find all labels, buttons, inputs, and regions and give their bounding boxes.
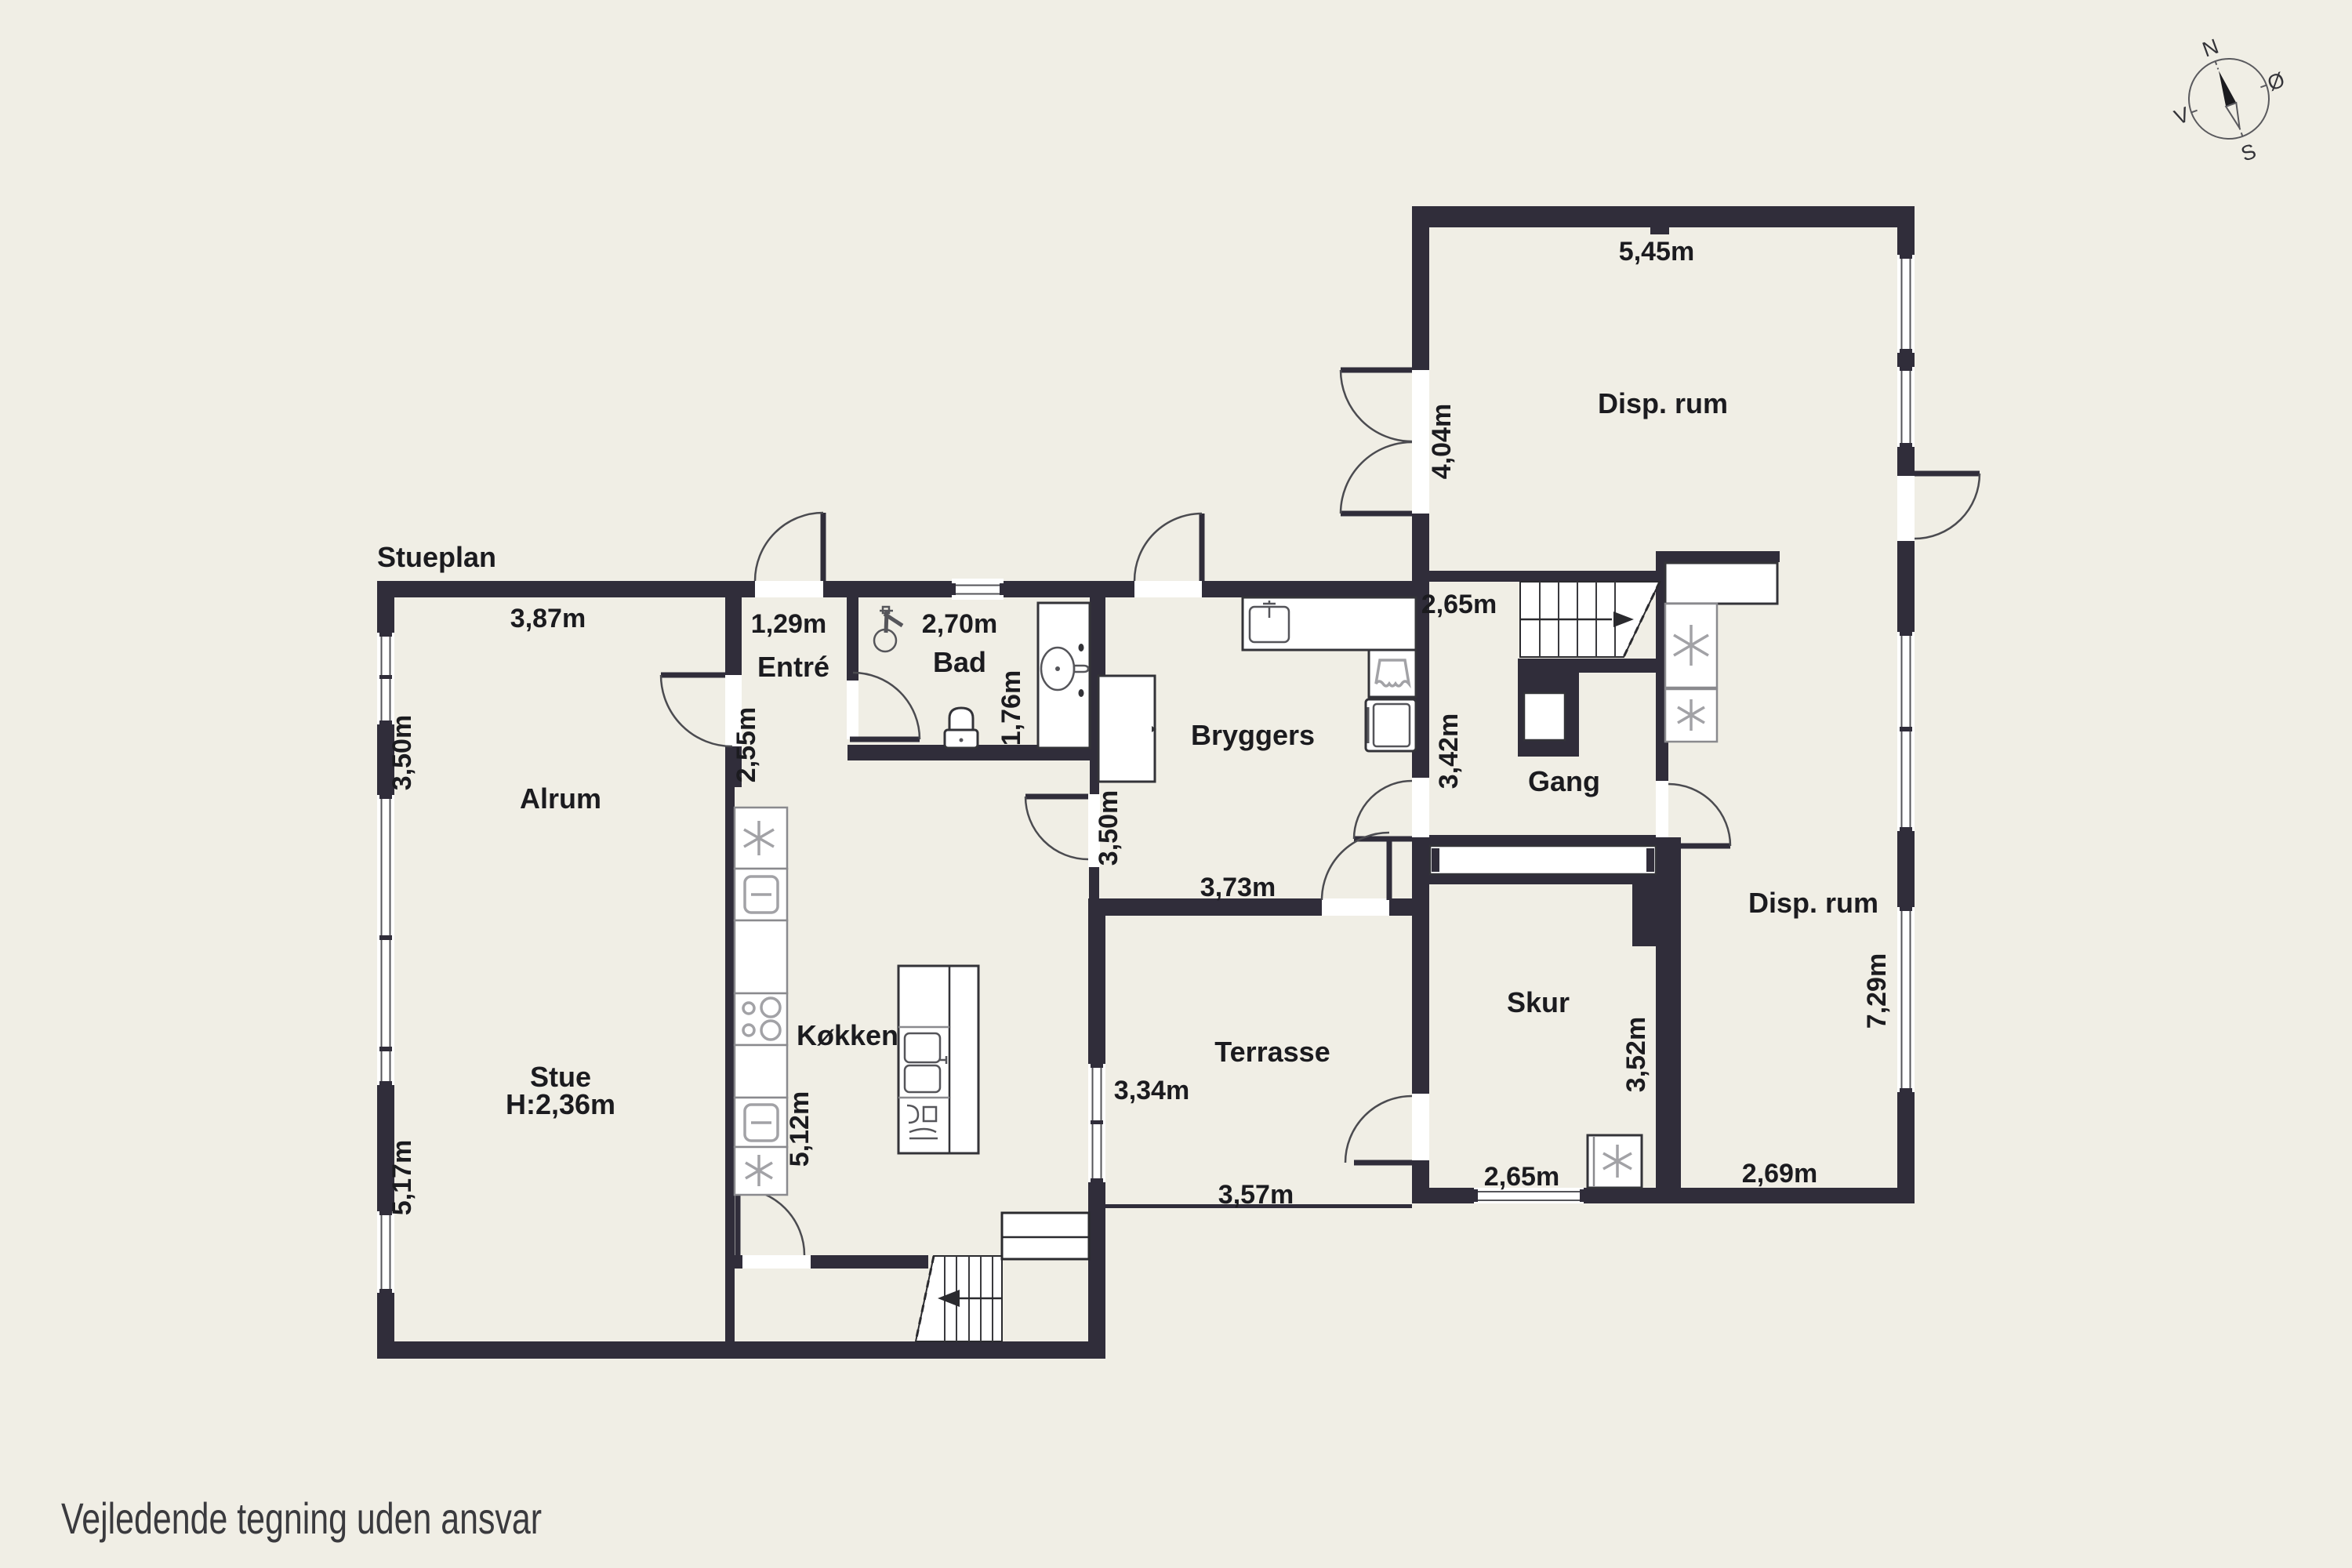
svg-text:2,55m: 2,55m [731, 707, 761, 782]
svg-text:2,65m: 2,65m [1421, 590, 1497, 619]
svg-text:Entré: Entré [757, 651, 829, 683]
svg-text:Terrasse: Terrasse [1214, 1036, 1330, 1068]
svg-text:3,34m: 3,34m [1114, 1076, 1189, 1105]
svg-text:2,65m: 2,65m [1484, 1162, 1559, 1192]
svg-text:1,76m: 1,76m [996, 670, 1026, 746]
svg-text:4,04m: 4,04m [1427, 404, 1457, 479]
svg-text:3,42m: 3,42m [1434, 713, 1464, 789]
svg-text:1,29m: 1,29m [751, 609, 826, 639]
svg-text:Skur: Skur [1507, 986, 1570, 1018]
svg-text:3,50m: 3,50m [387, 715, 417, 790]
svg-text:H:2,36m: H:2,36m [506, 1088, 615, 1120]
svg-text:Gang: Gang [1528, 765, 1600, 797]
svg-text:3,52m: 3,52m [1621, 1017, 1651, 1092]
svg-text:2,69m: 2,69m [1742, 1159, 1817, 1189]
svg-text:5,17m: 5,17m [387, 1140, 417, 1215]
svg-text:Køkken: Køkken [797, 1019, 898, 1051]
svg-text:Disp. rum: Disp. rum [1748, 887, 1878, 919]
svg-text:Vejledende tegning uden ansvar: Vejledende tegning uden ansvar [61, 1494, 542, 1543]
svg-text:5,12m: 5,12m [785, 1091, 815, 1167]
svg-text:Bad: Bad [933, 646, 986, 678]
svg-text:3,73m: 3,73m [1200, 873, 1276, 902]
svg-text:Disp. rum: Disp. rum [1598, 387, 1728, 419]
svg-text:3,87m: 3,87m [510, 604, 586, 633]
svg-text:Alrum: Alrum [520, 782, 601, 815]
svg-text:3,50m: 3,50m [1094, 790, 1123, 866]
svg-text:7,29m: 7,29m [1862, 953, 1892, 1029]
svg-text:3,57m: 3,57m [1218, 1180, 1294, 1210]
svg-text:5,45m: 5,45m [1619, 237, 1694, 267]
svg-text:Bryggers: Bryggers [1191, 719, 1315, 751]
svg-text:Stueplan: Stueplan [377, 541, 496, 573]
svg-text:2,70m: 2,70m [922, 609, 997, 639]
